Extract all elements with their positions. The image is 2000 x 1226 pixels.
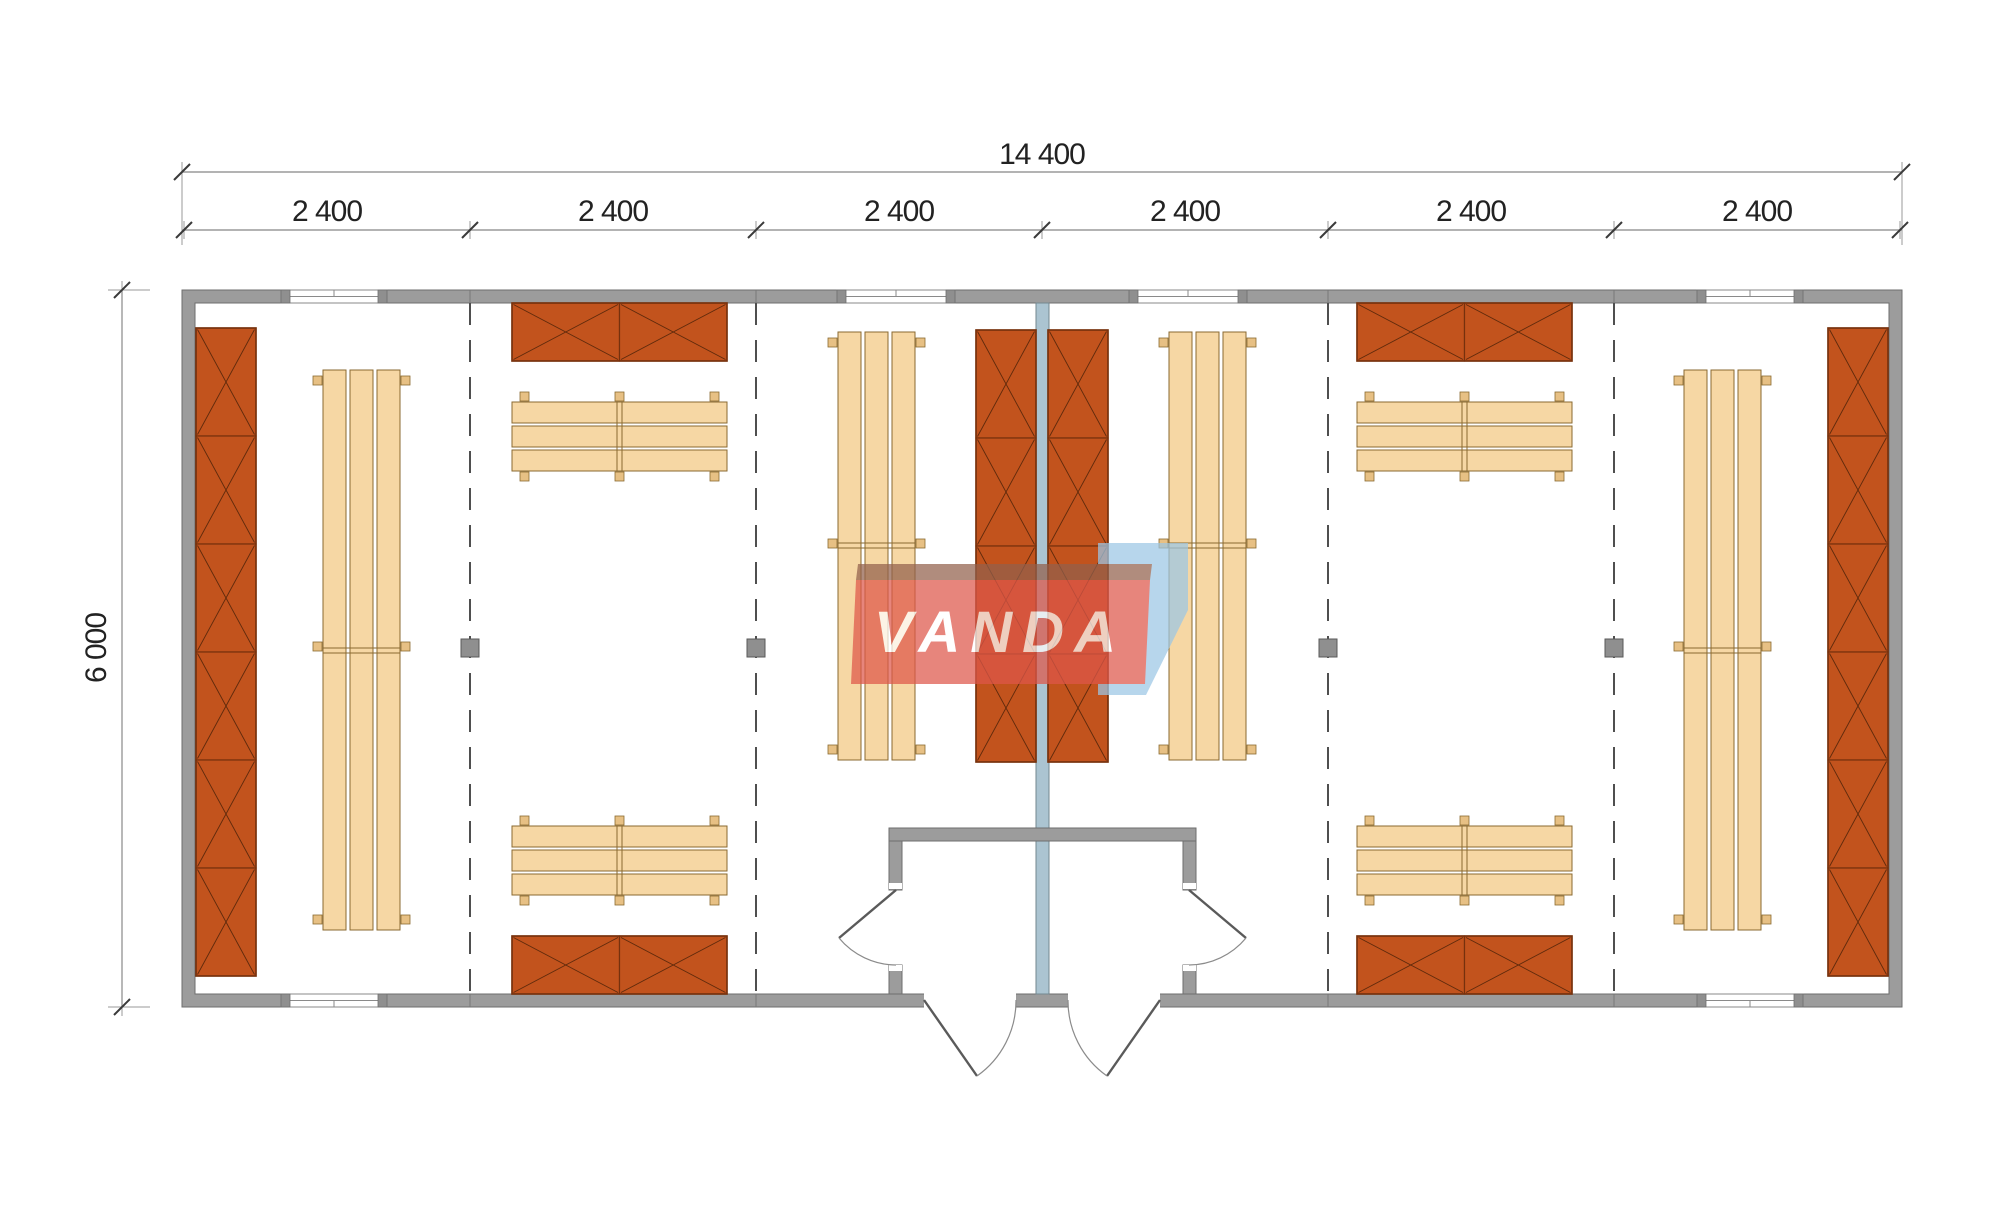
window bbox=[281, 290, 387, 303]
window bbox=[1129, 290, 1247, 303]
watermark-fold-shape bbox=[856, 564, 1152, 580]
locker-cabinet bbox=[512, 303, 727, 361]
floor-plan-drawing: 14 400 2 400 2 400 2 400 2 400 2 400 2 4… bbox=[0, 0, 2000, 1226]
column bbox=[1319, 639, 1337, 657]
dimension-height: 6 000 bbox=[80, 281, 150, 1016]
dimension-label-bay: 2 400 bbox=[578, 195, 648, 228]
bench bbox=[1357, 816, 1572, 905]
bench bbox=[828, 332, 925, 760]
locker-cabinet bbox=[1357, 303, 1572, 361]
locker-cabinet bbox=[1357, 936, 1572, 994]
locker-cabinet bbox=[196, 328, 256, 976]
door-swing bbox=[839, 890, 896, 965]
dimension-bays: 2 400 2 400 2 400 2 400 2 400 2 400 bbox=[176, 195, 1908, 239]
column bbox=[461, 639, 479, 657]
column bbox=[747, 639, 765, 657]
door-swing bbox=[924, 1000, 1016, 1076]
dimension-label-bay: 2 400 bbox=[1436, 195, 1506, 228]
dimension-label-bay: 2 400 bbox=[292, 195, 362, 228]
window bbox=[837, 290, 955, 303]
dimension-label-bay: 2 400 bbox=[864, 195, 934, 228]
window bbox=[1697, 290, 1803, 303]
locker-cabinet bbox=[976, 330, 1036, 762]
door-swing bbox=[1068, 1000, 1160, 1076]
bench bbox=[1357, 392, 1572, 481]
dimension-label-height: 6 000 bbox=[80, 613, 113, 683]
locker-cabinet bbox=[512, 936, 727, 994]
door-swing bbox=[1189, 890, 1246, 965]
dimension-label-bay: 2 400 bbox=[1150, 195, 1220, 228]
floor-plan-page: 14 400 2 400 2 400 2 400 2 400 2 400 2 4… bbox=[0, 0, 2000, 1226]
window bbox=[281, 994, 387, 1007]
bench bbox=[1674, 370, 1771, 930]
column bbox=[1605, 639, 1623, 657]
bench bbox=[512, 816, 727, 905]
window bbox=[1697, 994, 1803, 1007]
watermark-text: VANDA bbox=[874, 600, 1126, 665]
bench bbox=[313, 370, 410, 930]
bench bbox=[512, 392, 727, 481]
watermark-logo: VANDA bbox=[851, 543, 1188, 695]
dimension-label-bay: 2 400 bbox=[1722, 195, 1792, 228]
dimension-label-total-width: 14 400 bbox=[999, 138, 1085, 171]
locker-cabinet bbox=[1828, 328, 1888, 976]
